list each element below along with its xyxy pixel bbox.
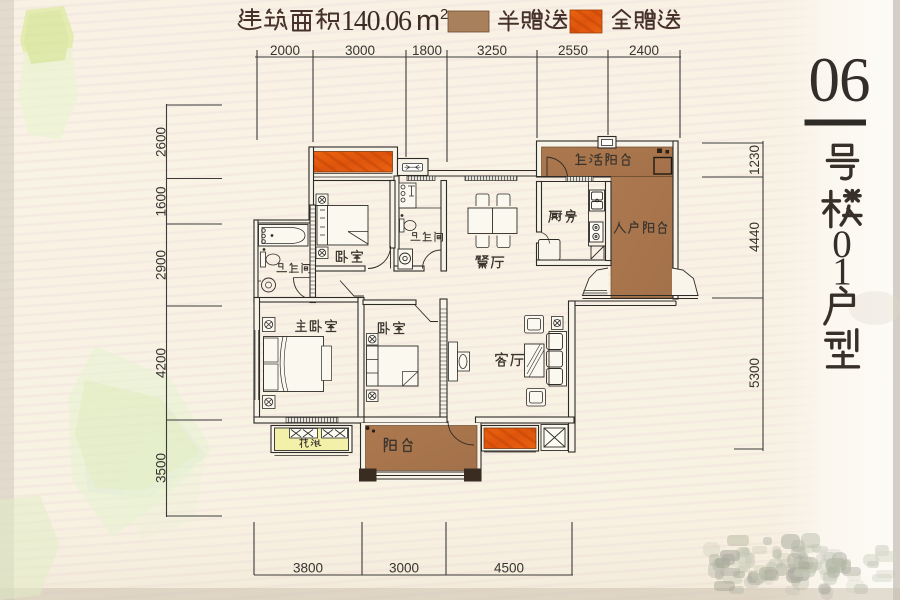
svg-text:06: 06: [809, 45, 870, 115]
svg-text:3250: 3250: [477, 43, 507, 58]
svg-text:2600: 2600: [154, 127, 169, 157]
svg-text:2: 2: [440, 6, 448, 23]
svg-text:3800: 3800: [293, 561, 323, 576]
svg-text:4440: 4440: [747, 222, 762, 252]
svg-text:5300: 5300: [747, 358, 762, 388]
svg-text:2400: 2400: [629, 43, 659, 58]
svg-text:2550: 2550: [558, 43, 588, 58]
svg-text:1600: 1600: [154, 186, 169, 216]
svg-text:4500: 4500: [494, 561, 524, 576]
svg-text:m: m: [416, 5, 440, 37]
svg-text:1230: 1230: [747, 145, 762, 175]
svg-text:140.06: 140.06: [341, 6, 412, 37]
svg-text:3000: 3000: [345, 43, 375, 58]
svg-text:3000: 3000: [389, 561, 419, 576]
svg-text:1800: 1800: [412, 43, 442, 58]
svg-text:2900: 2900: [154, 250, 169, 280]
svg-text:3500: 3500: [154, 453, 169, 483]
svg-text:4200: 4200: [154, 348, 169, 378]
svg-text:2000: 2000: [270, 43, 300, 58]
